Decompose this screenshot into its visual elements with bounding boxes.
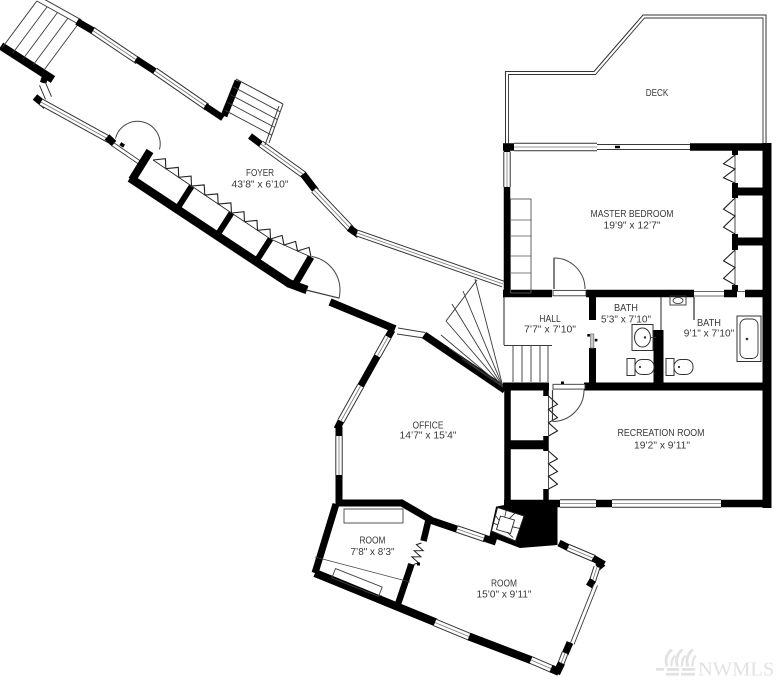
svg-text:BATH: BATH: [697, 318, 721, 329]
svg-text:ROOM: ROOM: [491, 579, 517, 590]
svg-text:7’7" x 7’10": 7’7" x 7’10": [524, 325, 576, 336]
svg-text:RECREATION ROOM: RECREATION ROOM: [618, 428, 705, 439]
svg-text:HALL: HALL: [539, 314, 561, 325]
svg-text:9’1" x 7’10": 9’1" x 7’10": [684, 329, 735, 340]
svg-text:FOYER: FOYER: [246, 168, 274, 179]
svg-text:15’0" x 9’11": 15’0" x 9’11": [477, 590, 532, 601]
svg-text:ROOM: ROOM: [360, 536, 386, 547]
svg-text:5’3" x 7’10": 5’3" x 7’10": [601, 315, 651, 326]
svg-text:NWMLS: NWMLS: [698, 659, 774, 681]
svg-text:DECK: DECK: [646, 88, 669, 99]
svg-text:19’9" x 12’7": 19’9" x 12’7": [604, 221, 661, 232]
svg-text:7’8" x 8’3": 7’8" x 8’3": [351, 547, 395, 558]
svg-text:43’8" x 6’10": 43’8" x 6’10": [232, 180, 289, 191]
svg-text:14’7" x 15’4": 14’7" x 15’4": [400, 431, 457, 442]
svg-text:BATH: BATH: [614, 303, 638, 314]
svg-text:19’2" x 9’11": 19’2" x 9’11": [634, 441, 690, 452]
svg-text:MASTER BEDROOM: MASTER BEDROOM: [591, 209, 674, 220]
